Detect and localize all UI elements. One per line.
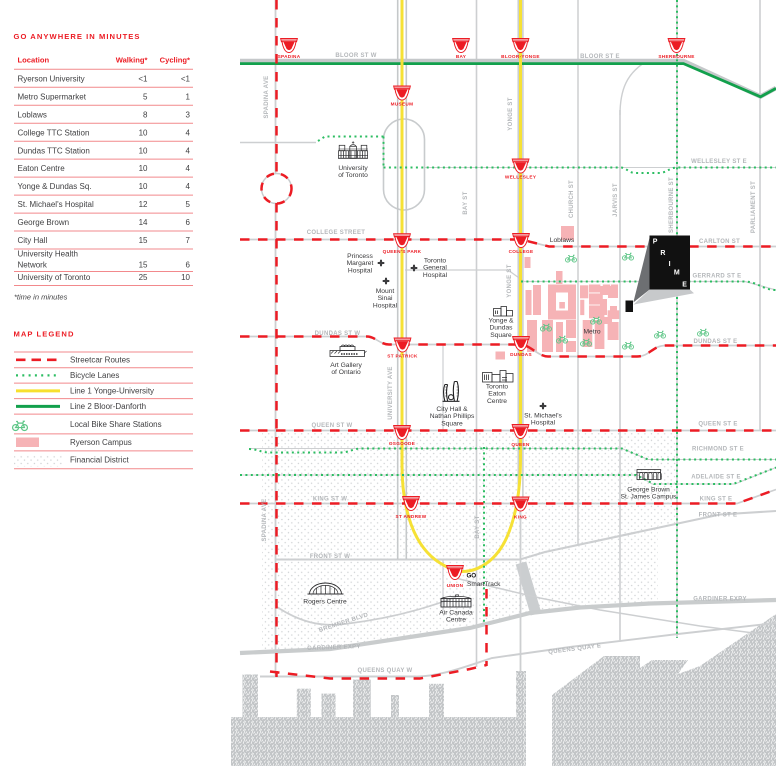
svg-text:14: 14 xyxy=(139,218,148,227)
svg-text:BAY ST: BAY ST xyxy=(475,515,481,538)
svg-text:Loblaws: Loblaws xyxy=(550,237,575,244)
svg-text:SmartTrack: SmartTrack xyxy=(467,581,501,588)
svg-text:15: 15 xyxy=(139,236,148,245)
svg-text:ST ANDREW: ST ANDREW xyxy=(396,514,427,519)
svg-text:E: E xyxy=(682,281,687,288)
svg-text:Ryerson University: Ryerson University xyxy=(18,74,85,83)
svg-text:RICHMOND ST E: RICHMOND ST E xyxy=(692,447,744,453)
svg-text:6: 6 xyxy=(186,261,191,270)
svg-text:Rogers Centre: Rogers Centre xyxy=(303,599,347,606)
svg-text:I: I xyxy=(669,261,671,268)
svg-text:UNIVERSITY AVE: UNIVERSITY AVE xyxy=(388,366,394,419)
svg-text:<1: <1 xyxy=(181,74,191,83)
svg-text:R: R xyxy=(660,250,665,257)
svg-text:12: 12 xyxy=(139,200,148,209)
svg-text:FRONT ST E: FRONT ST E xyxy=(699,513,738,519)
svg-text:<1: <1 xyxy=(138,74,148,83)
svg-text:QUEEN'S PARK: QUEEN'S PARK xyxy=(383,249,422,254)
svg-text:PARLIAMENT ST: PARLIAMENT ST xyxy=(751,181,757,233)
svg-text:City Hall: City Hall xyxy=(18,236,48,245)
svg-text:15: 15 xyxy=(139,261,148,270)
svg-text:Metro: Metro xyxy=(583,329,600,336)
svg-text:SHERBOURNE ST: SHERBOURNE ST xyxy=(669,177,675,233)
svg-text:KING ST W: KING ST W xyxy=(313,497,347,503)
svg-text:College TTC Station: College TTC Station xyxy=(18,128,90,137)
svg-text:BAY ST: BAY ST xyxy=(463,191,469,214)
svg-text:Loblaws: Loblaws xyxy=(18,110,47,119)
svg-text:GO ANYWHERE IN MINUTES: GO ANYWHERE IN MINUTES xyxy=(14,32,141,41)
svg-text:SPADINA: SPADINA xyxy=(278,54,301,59)
svg-text:6: 6 xyxy=(186,218,191,227)
svg-text:Line 2 Bloor-Danforth: Line 2 Bloor-Danforth xyxy=(70,402,146,411)
svg-text:QUEEN ST E: QUEEN ST E xyxy=(698,422,737,428)
svg-text:10: 10 xyxy=(181,273,190,282)
svg-text:COLLEGE: COLLEGE xyxy=(509,249,534,254)
svg-text:PrincessMargaretHospital: PrincessMargaretHospital xyxy=(347,253,374,274)
svg-text:TorontoGeneralHospital: TorontoGeneralHospital xyxy=(423,258,448,279)
svg-text:Eaton Centre: Eaton Centre xyxy=(18,164,66,173)
svg-text:BLOOR ST W: BLOOR ST W xyxy=(335,53,376,59)
svg-text:10: 10 xyxy=(139,128,148,137)
svg-text:JARVIS ST: JARVIS ST xyxy=(613,183,619,217)
svg-text:City Hall &Nathan PhillipsSqua: City Hall &Nathan PhillipsSquare xyxy=(430,406,475,427)
svg-text:UNION: UNION xyxy=(447,583,464,588)
svg-text:KING ST E: KING ST E xyxy=(700,497,733,503)
svg-text:Bicycle Lanes: Bicycle Lanes xyxy=(70,371,119,380)
svg-text:25: 25 xyxy=(139,273,148,282)
svg-text:Metro Supermarket: Metro Supermarket xyxy=(18,92,87,101)
svg-text:QUEENS QUAY W: QUEENS QUAY W xyxy=(358,668,413,674)
svg-text:Location: Location xyxy=(18,56,50,65)
svg-text:8: 8 xyxy=(143,110,148,119)
svg-text:QUEEN: QUEEN xyxy=(511,442,529,447)
svg-text:GARDINER EXPY: GARDINER EXPY xyxy=(307,644,361,652)
svg-text:DUNDAS: DUNDAS xyxy=(510,352,532,357)
svg-text:*time in minutes: *time in minutes xyxy=(14,293,68,302)
svg-text:10: 10 xyxy=(139,146,148,155)
svg-text:5: 5 xyxy=(186,200,191,209)
svg-text:YONGE ST: YONGE ST xyxy=(508,97,514,130)
svg-text:QUEENS QUAY E: QUEENS QUAY E xyxy=(548,643,602,655)
svg-text:4: 4 xyxy=(186,182,191,191)
svg-text:WELLESLEY: WELLESLEY xyxy=(505,175,537,180)
svg-text:DUNDAS ST E: DUNDAS ST E xyxy=(694,339,738,345)
svg-text:OSGOODE: OSGOODE xyxy=(389,441,415,446)
svg-text:M: M xyxy=(674,270,680,277)
svg-text:Yonge & Dundas Sq.: Yonge & Dundas Sq. xyxy=(18,182,92,191)
svg-text:FRONT ST W: FRONT ST W xyxy=(310,554,350,560)
svg-text:MAP LEGEND: MAP LEGEND xyxy=(14,330,75,339)
svg-text:4: 4 xyxy=(186,146,191,155)
svg-text:BLOOR ST E: BLOOR ST E xyxy=(580,54,620,60)
svg-text:Local Bike Share Stations: Local Bike Share Stations xyxy=(70,420,162,429)
svg-text:TorontoEatonCentre: TorontoEatonCentre xyxy=(486,384,509,405)
svg-text:3: 3 xyxy=(186,110,191,119)
svg-text:DUNDAS ST W: DUNDAS ST W xyxy=(315,331,361,337)
svg-text:WELLESLEY ST E: WELLESLEY ST E xyxy=(691,159,747,165)
svg-text:SPADINA AVE: SPADINA AVE xyxy=(262,499,268,542)
svg-text:SHERBOURNE: SHERBOURNE xyxy=(658,54,694,59)
svg-text:QUEEN ST W: QUEEN ST W xyxy=(311,423,352,429)
svg-text:1: 1 xyxy=(186,92,191,101)
svg-text:Yonge &DundasSquare: Yonge &DundasSquare xyxy=(488,318,514,339)
svg-text:Financial District: Financial District xyxy=(70,456,129,465)
svg-text:CHURCH ST: CHURCH ST xyxy=(569,180,575,218)
svg-text:University Health: University Health xyxy=(18,250,78,259)
svg-text:BLOOR-YONGE: BLOOR-YONGE xyxy=(501,54,540,59)
svg-text:ST PATRICK: ST PATRICK xyxy=(387,354,418,359)
svg-text:GO: GO xyxy=(467,573,477,580)
svg-text:Walking*: Walking* xyxy=(116,56,148,65)
svg-text:University of Toronto: University of Toronto xyxy=(18,273,91,282)
svg-text:GERRARD ST E: GERRARD ST E xyxy=(693,274,742,280)
svg-text:George BrownSt. James Campus: George BrownSt. James Campus xyxy=(621,487,677,501)
svg-text:MUSEUM: MUSEUM xyxy=(391,102,414,107)
svg-text:St. Michael's Hospital: St. Michael's Hospital xyxy=(18,200,94,209)
svg-text:KING: KING xyxy=(514,515,527,520)
svg-text:YONGE ST: YONGE ST xyxy=(507,264,513,297)
svg-text:St. Michael'sHospital: St. Michael'sHospital xyxy=(524,413,562,427)
svg-text:Streetcar Routes: Streetcar Routes xyxy=(70,356,130,365)
svg-text:7: 7 xyxy=(186,236,191,245)
svg-text:COLLEGE STREET: COLLEGE STREET xyxy=(307,230,366,236)
svg-text:Network: Network xyxy=(18,261,48,270)
svg-text:BAY: BAY xyxy=(456,54,467,59)
svg-text:Art Galleryof Ontario: Art Galleryof Ontario xyxy=(330,362,362,376)
svg-text:Cycling*: Cycling* xyxy=(160,56,190,65)
svg-text:5: 5 xyxy=(143,92,148,101)
svg-text:P: P xyxy=(653,239,658,246)
svg-text:10: 10 xyxy=(139,164,148,173)
svg-text:SPADINA AVE: SPADINA AVE xyxy=(264,76,270,119)
svg-text:MountSinaiHospital: MountSinaiHospital xyxy=(373,288,398,309)
svg-text:Universityof Toronto: Universityof Toronto xyxy=(338,165,368,179)
svg-text:Dundas TTC Station: Dundas TTC Station xyxy=(18,146,90,155)
svg-text:GARDINER EXPY: GARDINER EXPY xyxy=(693,597,747,603)
svg-text:George Brown: George Brown xyxy=(18,218,70,227)
svg-text:4: 4 xyxy=(186,164,191,173)
svg-text:10: 10 xyxy=(139,182,148,191)
svg-text:ADELAIDE ST E: ADELAIDE ST E xyxy=(691,475,741,481)
svg-text:Ryerson Campus: Ryerson Campus xyxy=(70,438,132,447)
svg-text:4: 4 xyxy=(186,128,191,137)
svg-text:CARLTON ST: CARLTON ST xyxy=(699,239,740,245)
svg-text:Line 1 Yonge-University: Line 1 Yonge-University xyxy=(70,387,154,396)
